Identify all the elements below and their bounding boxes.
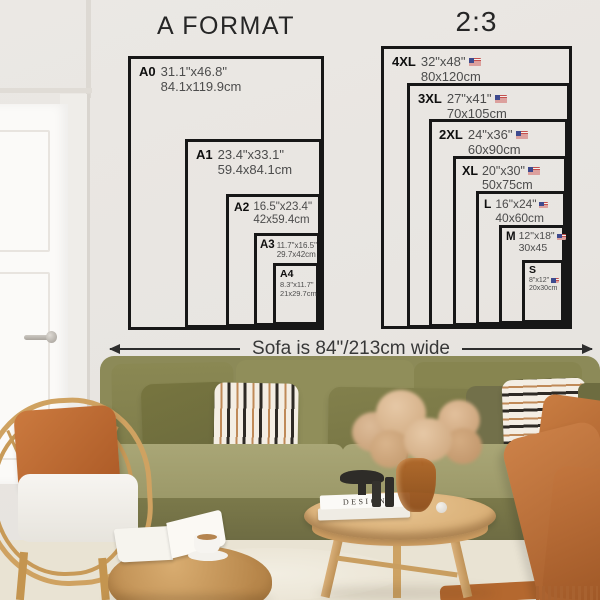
size-inches: 16.5"x23.4" — [253, 201, 312, 214]
size-cm: 20x30cm — [529, 285, 559, 293]
candle-holder — [385, 477, 394, 507]
size-inches: 31.1"x46.8" — [161, 65, 227, 80]
size-label: A2 — [234, 201, 249, 215]
size-cm: 42x59.4cm — [253, 214, 312, 227]
size-label: A1 — [196, 148, 213, 163]
ratio-title: 2:3 — [381, 6, 572, 38]
door-panel — [0, 130, 50, 252]
size-label: XL — [462, 164, 478, 178]
size-box-a4: A4 8.3"x11.7" 21x29.7cm — [273, 263, 319, 325]
door-handle-rosette — [46, 331, 57, 343]
a-format-title: A FORMAT — [128, 12, 324, 41]
black-bowl-stem — [358, 481, 366, 495]
shadow — [316, 586, 496, 600]
size-label: A0 — [139, 65, 156, 80]
size-label: M — [506, 231, 516, 244]
size-inches: 24"x36" — [468, 128, 513, 143]
measure-line-right — [462, 348, 592, 350]
book-page — [114, 526, 174, 562]
size-cm: 40x60cm — [495, 212, 547, 226]
size-cm: 59.4x84.1cm — [218, 163, 292, 178]
us-flag-icon — [539, 202, 548, 208]
size-inches: 20"x30" — [482, 164, 525, 178]
sofa-width-measure: Sofa is 84"/213cm wide — [110, 338, 592, 360]
amber-vase — [396, 458, 436, 512]
size-cm: 84.1x119.9cm — [161, 80, 242, 95]
us-flag-icon — [516, 131, 528, 139]
throw-fringe — [536, 586, 598, 600]
wall-molding — [86, 0, 91, 98]
size-inches: 32"x48" — [421, 55, 466, 70]
size-inches: 27"x41" — [447, 92, 492, 107]
size-box-s: S 8"x12" 20x30cm — [522, 260, 564, 323]
deco-ball — [436, 502, 447, 513]
size-inches: 11.7"x16.5" — [277, 241, 317, 250]
size-inches: 8"x12" — [529, 277, 549, 285]
us-flag-icon — [469, 58, 481, 66]
candle-holder — [372, 481, 381, 507]
size-inches: 16"x24" — [495, 198, 536, 212]
size-label: L — [484, 198, 491, 212]
arrow-right-icon — [582, 344, 593, 354]
us-flag-icon — [495, 95, 507, 103]
size-label: A3 — [260, 239, 275, 252]
us-flag-icon — [528, 167, 540, 175]
wall-molding — [0, 88, 92, 93]
arrow-left-icon — [109, 344, 120, 354]
coffee — [197, 534, 217, 540]
poster-size-guide-mockup: DESIGN A FORMAT A0 31.1"x46.8" 84.1x119.… — [0, 0, 600, 600]
shadow — [104, 594, 274, 600]
size-label: 4XL — [392, 55, 416, 70]
size-label: 3XL — [418, 92, 442, 107]
size-label: 2XL — [439, 128, 463, 143]
size-label: S — [529, 265, 536, 277]
sofa-width-label: Sofa is 84"/213cm wide — [252, 338, 450, 360]
measure-line-left — [110, 348, 240, 350]
size-cm: 30x45 — [519, 243, 566, 255]
us-flag-icon — [557, 234, 566, 240]
us-flag-icon — [551, 278, 559, 283]
size-cm: 21x29.7cm — [280, 290, 317, 299]
size-inches: 23.4"x33.1" — [218, 148, 284, 163]
size-cm: 29.7x42cm — [277, 250, 317, 259]
